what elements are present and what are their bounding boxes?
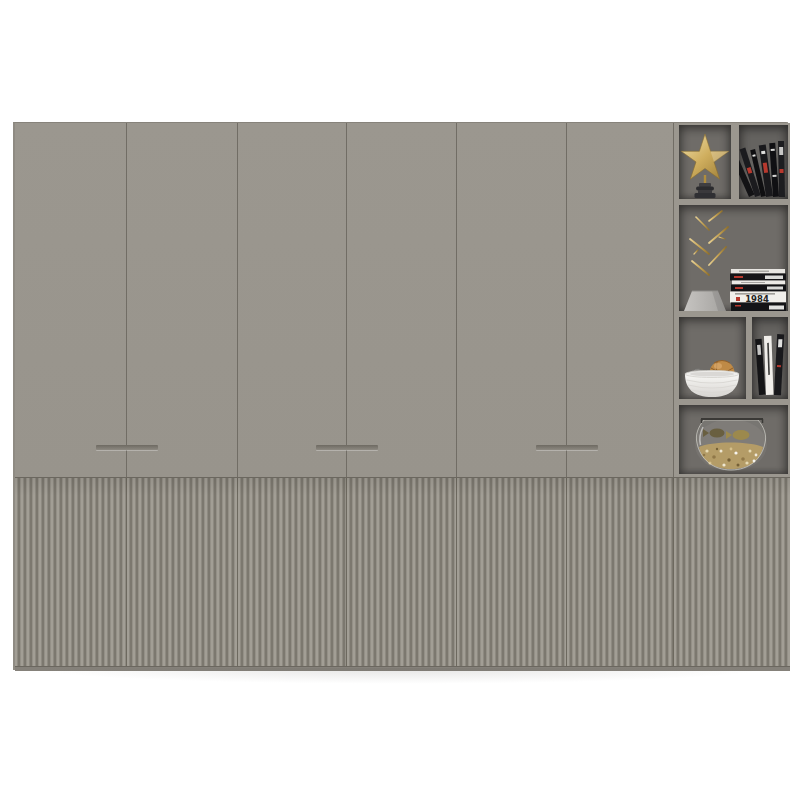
door-panel-6 — [567, 123, 674, 477]
wardrobe-product-render: 1984 — [0, 0, 800, 800]
door-panel-2 — [127, 123, 238, 477]
gray-vase — [684, 291, 726, 311]
upper-door-section: 1984 — [15, 123, 790, 477]
shelf-cell-fishbowl — [679, 405, 788, 474]
door-panel-3 — [238, 123, 347, 477]
ribbed-bowl-with-rattan-balls — [679, 317, 746, 399]
door-panel-5 — [457, 123, 567, 477]
fluted-panel-7 — [674, 478, 790, 666]
door-panel-1 — [15, 123, 127, 477]
door-handle-2 — [316, 445, 378, 450]
glass-fishbowl — [679, 405, 788, 474]
book-spine-1984-text: 1984 — [745, 294, 769, 304]
leaning-books — [739, 125, 788, 199]
book-stack: 1984 — [730, 269, 786, 311]
star-pedestal — [695, 183, 716, 198]
fluted-panel-6 — [567, 478, 674, 666]
fluted-panel-2 — [127, 478, 238, 666]
display-shelf-column: 1984 — [674, 123, 790, 477]
shelf-cell-star — [679, 125, 731, 199]
door-handle-1 — [96, 445, 158, 450]
standing-books — [752, 317, 788, 399]
wardrobe-cabinet: 1984 — [13, 122, 788, 670]
gold-star-ornament — [679, 125, 731, 199]
fluted-panel-5 — [457, 478, 567, 666]
shelf-cell-branch-and-books: 1984 — [679, 205, 788, 311]
gold-branch-sculpture — [690, 211, 728, 293]
door-handle-3 — [536, 445, 598, 450]
book-spine-1984: 1984 — [730, 292, 786, 304]
shelf-cell-standing-books — [752, 317, 788, 399]
door-panel-4 — [347, 123, 457, 477]
white-ribbed-bowl — [685, 371, 739, 398]
shelf-cell-bowl — [679, 317, 746, 399]
fluted-panel-3 — [238, 478, 347, 666]
star-shape — [681, 134, 729, 179]
floor-shadow — [28, 668, 772, 684]
fluted-panel-1 — [15, 478, 127, 666]
branch-vase-bookstack: 1984 — [679, 205, 788, 311]
shelf-cell-leaning-books — [739, 125, 788, 199]
fluted-lower-section — [15, 477, 790, 666]
fluted-panel-4 — [347, 478, 457, 666]
